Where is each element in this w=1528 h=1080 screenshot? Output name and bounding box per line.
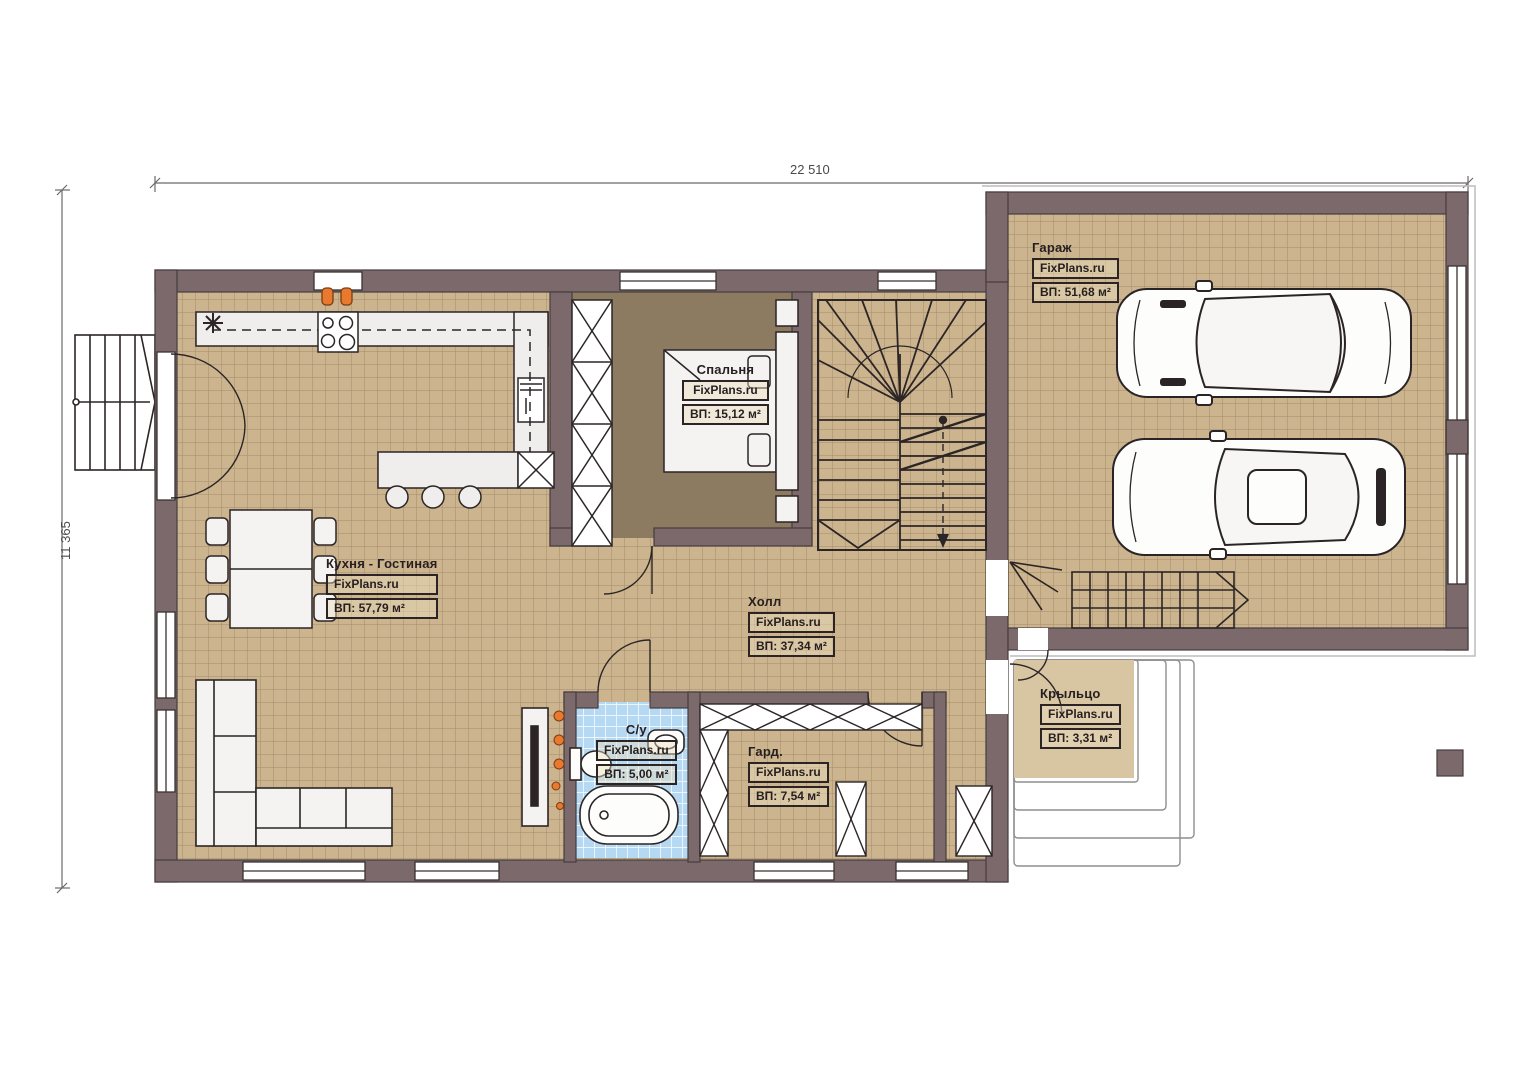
- window: [896, 862, 968, 880]
- dimension-left: 11 365: [58, 521, 73, 560]
- room-area: ВП: 51,68 м²: [1032, 282, 1119, 303]
- room-name: С/у: [596, 722, 677, 737]
- window: [415, 862, 499, 880]
- stove-icon: [318, 312, 358, 352]
- watermark: FixPlans.ru: [1040, 704, 1121, 725]
- nightstand: [776, 496, 798, 522]
- room-label-porch: Крыльцо FixPlans.ru ВП: 3,31 м²: [1040, 686, 1121, 749]
- room-label-kitchen-living: Кухня - Гостиная FixPlans.ru ВП: 57,79 м…: [326, 556, 438, 619]
- tv-icon: [531, 726, 538, 806]
- window: [157, 612, 175, 698]
- room-label-hall: Холл FixPlans.ru ВП: 37,34 м²: [748, 594, 835, 657]
- dimension-top: 22 510: [790, 162, 830, 177]
- room-label-bathroom: С/у FixPlans.ru ВП: 5,00 м²: [596, 722, 677, 785]
- pillow: [748, 434, 770, 466]
- stool: [459, 486, 481, 508]
- room-area: ВП: 15,12 м²: [682, 404, 769, 425]
- room-area: ВП: 5,00 м²: [596, 764, 677, 785]
- bathtub-icon: [580, 786, 678, 844]
- bedroom-wardrobe: [572, 300, 612, 546]
- window: [620, 272, 716, 290]
- tv-unit: [522, 708, 548, 826]
- floor-plan-drawing: [0, 0, 1528, 1080]
- chair: [206, 594, 228, 621]
- stool: [386, 486, 408, 508]
- watermark: FixPlans.ru: [748, 612, 835, 633]
- exterior-stairs: [73, 335, 155, 470]
- wall-bedroom-left: [550, 292, 572, 546]
- car-sedan: [1113, 431, 1405, 559]
- watermark: FixPlans.ru: [748, 762, 829, 783]
- garage-gate: [1446, 266, 1468, 584]
- room-area: ВП: 7,54 м²: [748, 786, 829, 807]
- room-area: ВП: 57,79 м²: [326, 598, 438, 619]
- floor-plan-canvas: 22 510 11 365 Гараж FixPlans.ru ВП: 51,6…: [0, 0, 1528, 1080]
- pier: [1437, 750, 1463, 776]
- headboard: [776, 332, 798, 490]
- watermark: FixPlans.ru: [682, 380, 769, 401]
- room-name: Кухня - Гостиная: [326, 556, 438, 571]
- room-label-garage: Гараж FixPlans.ru ВП: 51,68 м²: [1032, 240, 1119, 303]
- sink-icon: [203, 313, 223, 333]
- stool: [422, 486, 444, 508]
- room-name: Холл: [748, 594, 835, 609]
- window: [157, 710, 175, 792]
- window: [243, 862, 365, 880]
- chair: [314, 518, 336, 545]
- room-area: ВП: 3,31 м²: [1040, 728, 1121, 749]
- dining-set: [206, 510, 336, 628]
- room-name: Гард.: [748, 744, 829, 759]
- watermark: FixPlans.ru: [326, 574, 438, 595]
- room-name: Гараж: [1032, 240, 1119, 255]
- window: [754, 862, 834, 880]
- fridge-icon: [518, 378, 544, 422]
- kitchen-counter: [196, 312, 548, 346]
- room-name: Крыльцо: [1040, 686, 1121, 701]
- nightstand: [776, 300, 798, 326]
- room-label-bedroom: Спальня FixPlans.ru ВП: 15,12 м²: [682, 362, 769, 425]
- chair: [206, 518, 228, 545]
- watermark: FixPlans.ru: [1032, 258, 1119, 279]
- window: [878, 272, 936, 290]
- watermark: FixPlans.ru: [596, 740, 677, 761]
- car-coupe: [1117, 281, 1411, 405]
- room-area: ВП: 37,34 м²: [748, 636, 835, 657]
- room-name: Спальня: [682, 362, 769, 377]
- chair: [206, 556, 228, 583]
- room-label-wardrobe: Гард. FixPlans.ru ВП: 7,54 м²: [748, 744, 829, 807]
